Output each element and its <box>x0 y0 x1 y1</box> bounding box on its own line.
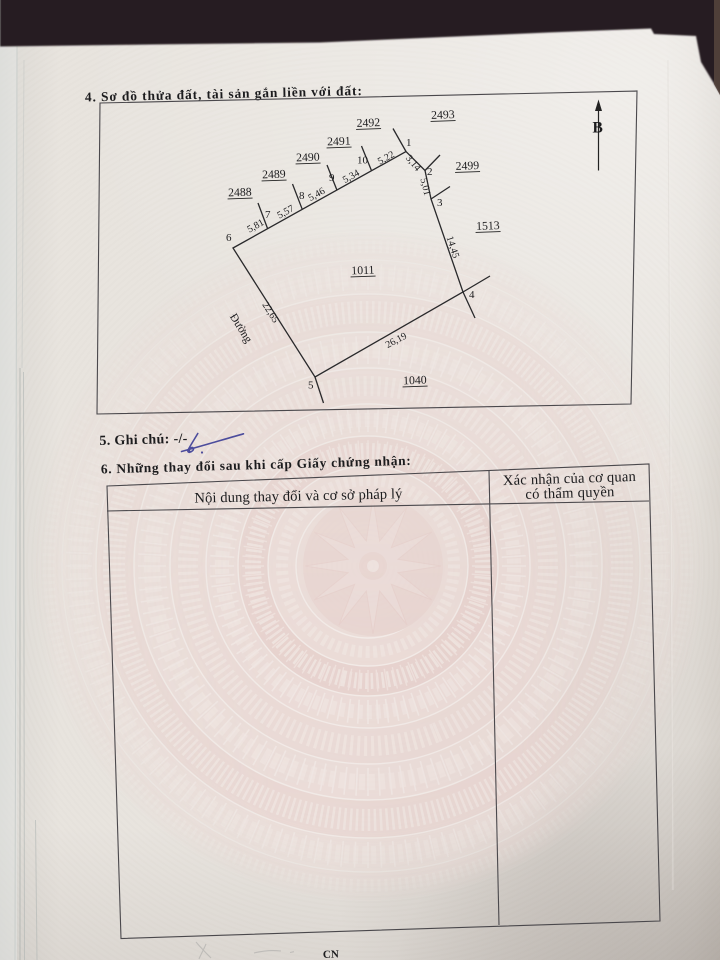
svg-text:5,81: 5,81 <box>245 217 266 235</box>
svg-text:2489: 2489 <box>262 167 286 182</box>
svg-text:5,34: 5,34 <box>341 168 362 186</box>
svg-text:3: 3 <box>437 197 443 209</box>
svg-text:10: 10 <box>357 155 369 167</box>
svg-text:9: 9 <box>329 172 335 184</box>
svg-text:B: B <box>593 120 603 137</box>
svg-text:5. Ghi chú: -/-: 5. Ghi chú: -/- <box>99 432 188 449</box>
svg-text:5: 5 <box>308 380 314 392</box>
svg-text:1040: 1040 <box>403 373 427 388</box>
svg-text:4: 4 <box>469 289 475 301</box>
svg-text:1513: 1513 <box>476 218 500 233</box>
svg-text:5,22: 5,22 <box>376 149 397 167</box>
svg-text:3,14: 3,14 <box>403 153 423 173</box>
svg-text:8: 8 <box>299 190 305 202</box>
svg-text:CN: CN <box>323 948 339 960</box>
svg-text:2491: 2491 <box>327 134 351 149</box>
svg-text:7: 7 <box>265 209 271 221</box>
svg-text:2499: 2499 <box>455 158 479 173</box>
svg-text:2493: 2493 <box>431 107 455 122</box>
svg-text:1011: 1011 <box>351 263 375 278</box>
svg-text:2488: 2488 <box>228 185 252 200</box>
svg-text:5,01: 5,01 <box>417 177 432 197</box>
svg-text:6: 6 <box>226 232 232 244</box>
svg-text:4. Sơ đồ thửa đất, tài sản gắn: 4. Sơ đồ thửa đất, tài sản gắn liền với … <box>85 83 362 105</box>
svg-text:1: 1 <box>406 137 412 149</box>
svg-text:có thẩm quyền: có thẩm quyền <box>525 484 615 503</box>
svg-text:2490: 2490 <box>296 150 320 165</box>
svg-text:2492: 2492 <box>356 115 380 130</box>
